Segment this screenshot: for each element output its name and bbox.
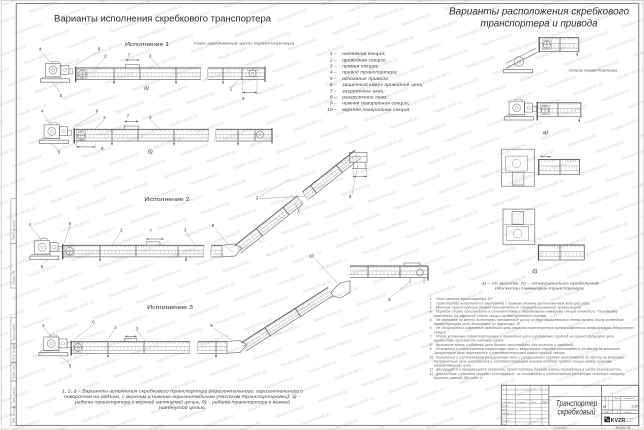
svg-text:6.: 6. xyxy=(430,326,433,330)
svg-text:приводная секция;: приводная секция; xyxy=(342,57,387,63)
svg-text:транспортера и привода: транспортера и привода xyxy=(481,19,598,30)
svg-text:б): б) xyxy=(148,149,153,155)
svg-text:защитный кожух приводной цепи;: защитный кожух приводной цепи; xyxy=(341,81,424,88)
svg-text:5.: 5. xyxy=(430,318,433,322)
svg-text:Масса: Масса xyxy=(615,398,622,400)
svg-text:М: М xyxy=(603,405,606,409)
svg-text:Н.контр.: Н.контр. xyxy=(502,420,510,422)
svg-text:Масштаб: Масштаб xyxy=(626,398,635,400)
svg-text:5 –: 5 – xyxy=(330,76,337,82)
svg-text:9.: 9. xyxy=(430,347,433,351)
svg-text:Опора транспортера: Опора транспортера xyxy=(569,69,618,73)
svg-text:1, 2, 3 – Варианты исполнения: 1, 2, 3 – Варианты исполнения скребковог… xyxy=(62,388,304,394)
svg-text:Исполнение 3: Исполнение 3 xyxy=(147,305,193,311)
svg-text:Справ. №: Справ. № xyxy=(12,270,16,285)
svg-text:поворотом на подъем, с верхни: поворотом на подъем, с верхним и нижним … xyxy=(64,394,301,400)
svg-text:Не допускается изменение завод: Не допускается изменение заводской цепи … xyxy=(436,326,634,330)
svg-text:Инв. № дубл.: Инв. № дубл. xyxy=(12,342,16,360)
svg-text:загрузочное окно;: загрузочное окно; xyxy=(341,89,385,94)
svg-text:Разраб.: Разраб. xyxy=(502,406,510,408)
svg-text:№ докум.: № докум. xyxy=(517,401,527,404)
svg-text:1:20: 1:20 xyxy=(631,404,639,408)
svg-text:а): а) xyxy=(543,130,548,136)
svg-text:б): б) xyxy=(532,269,537,275)
svg-text:9 –: 9 – xyxy=(330,101,337,107)
svg-text:натянутой цепью.: натянутой цепью. xyxy=(159,404,206,411)
svg-text:Лист: Лист xyxy=(508,402,513,404)
svg-text:6 –: 6 – xyxy=(330,82,337,88)
svg-text:основание привода;: основание привода; xyxy=(342,76,390,82)
svg-text:Исполнение 2: Исполнение 2 xyxy=(145,197,190,203)
svg-text:8 –: 8 – xyxy=(330,95,337,101)
svg-text:7 –: 7 – xyxy=(330,88,337,94)
svg-text:2 –: 2 – xyxy=(329,57,337,63)
svg-text:Перв. примен.: Перв. примен. xyxy=(12,220,16,241)
svg-text:Т.контр.: Т.контр. xyxy=(502,413,510,415)
svg-text:1 –: 1 – xyxy=(330,51,337,57)
svg-text:верхняя поворотная секция;: верхняя поворотная секция; xyxy=(342,108,411,113)
svg-text:Пров.: Пров. xyxy=(502,409,508,411)
svg-text:завод гор.: завод гор. xyxy=(624,420,633,422)
svg-text:Лист: Лист xyxy=(605,412,609,414)
svg-text:скребковый: скребковый xyxy=(558,407,597,416)
svg-text:Подп. и дата: Подп. и дата xyxy=(12,387,16,404)
svg-text:разгрузочное окно;: разгрузочное окно; xyxy=(341,96,388,101)
svg-text:плоскости симметрии транспорте: плоскости симметрии транспортера. xyxy=(495,286,585,291)
svg-text:3 –: 3 – xyxy=(330,64,337,70)
svg-text:привод транспортера;: привод транспортера; xyxy=(342,70,398,76)
svg-text:Подп. и дата: Подп. и дата xyxy=(12,324,16,341)
svg-text:10: 10 xyxy=(309,254,314,259)
svg-text:Подп.: Подп. xyxy=(531,402,537,404)
svg-text:Листов: Листов xyxy=(624,412,631,414)
svg-text:Лит.: Лит. xyxy=(604,398,608,400)
svg-text:7.: 7. xyxy=(430,335,433,339)
svg-text:10 –: 10 – xyxy=(327,107,337,113)
svg-text:принять равной 150 кг/т. п.: принять равной 150 кг/т. п. xyxy=(434,376,484,380)
svg-text:а): а) xyxy=(144,86,149,92)
svg-text:Варианты исполнения скребковог: Варианты исполнения скребкового транспор… xyxy=(54,14,272,25)
svg-text:Копировал: Копировал xyxy=(554,426,567,430)
svg-text:4 –: 4 – xyxy=(330,70,337,76)
svg-text:Инв. № подл.: Инв. № подл. xyxy=(12,405,16,423)
svg-text:Исполнение 1: Исполнение 1 xyxy=(125,42,169,48)
svg-text:прямая секция;: прямая секция; xyxy=(342,65,379,70)
svg-text:Варианты расположения скребков: Варианты расположения скребкового xyxy=(449,6,629,18)
svg-text:натяжная секция;: натяжная секция; xyxy=(342,52,386,57)
svg-text:Утв.: Утв. xyxy=(502,424,506,426)
svg-text:работа транспортера с верхней: работа транспортера с верхней натянутой … xyxy=(74,399,290,406)
svg-text:Взам. инв. №: Взам. инв. № xyxy=(12,361,16,379)
svg-text:Узел натяжения цепи транспорте: Узел натяжения цепи транспортера xyxy=(193,41,295,46)
svg-text:нижняя поворотная секция;: нижняя поворотная секция; xyxy=(342,102,410,107)
svg-text:4.: 4. xyxy=(430,310,433,314)
svg-text:Формат А3: Формат А3 xyxy=(615,426,630,430)
